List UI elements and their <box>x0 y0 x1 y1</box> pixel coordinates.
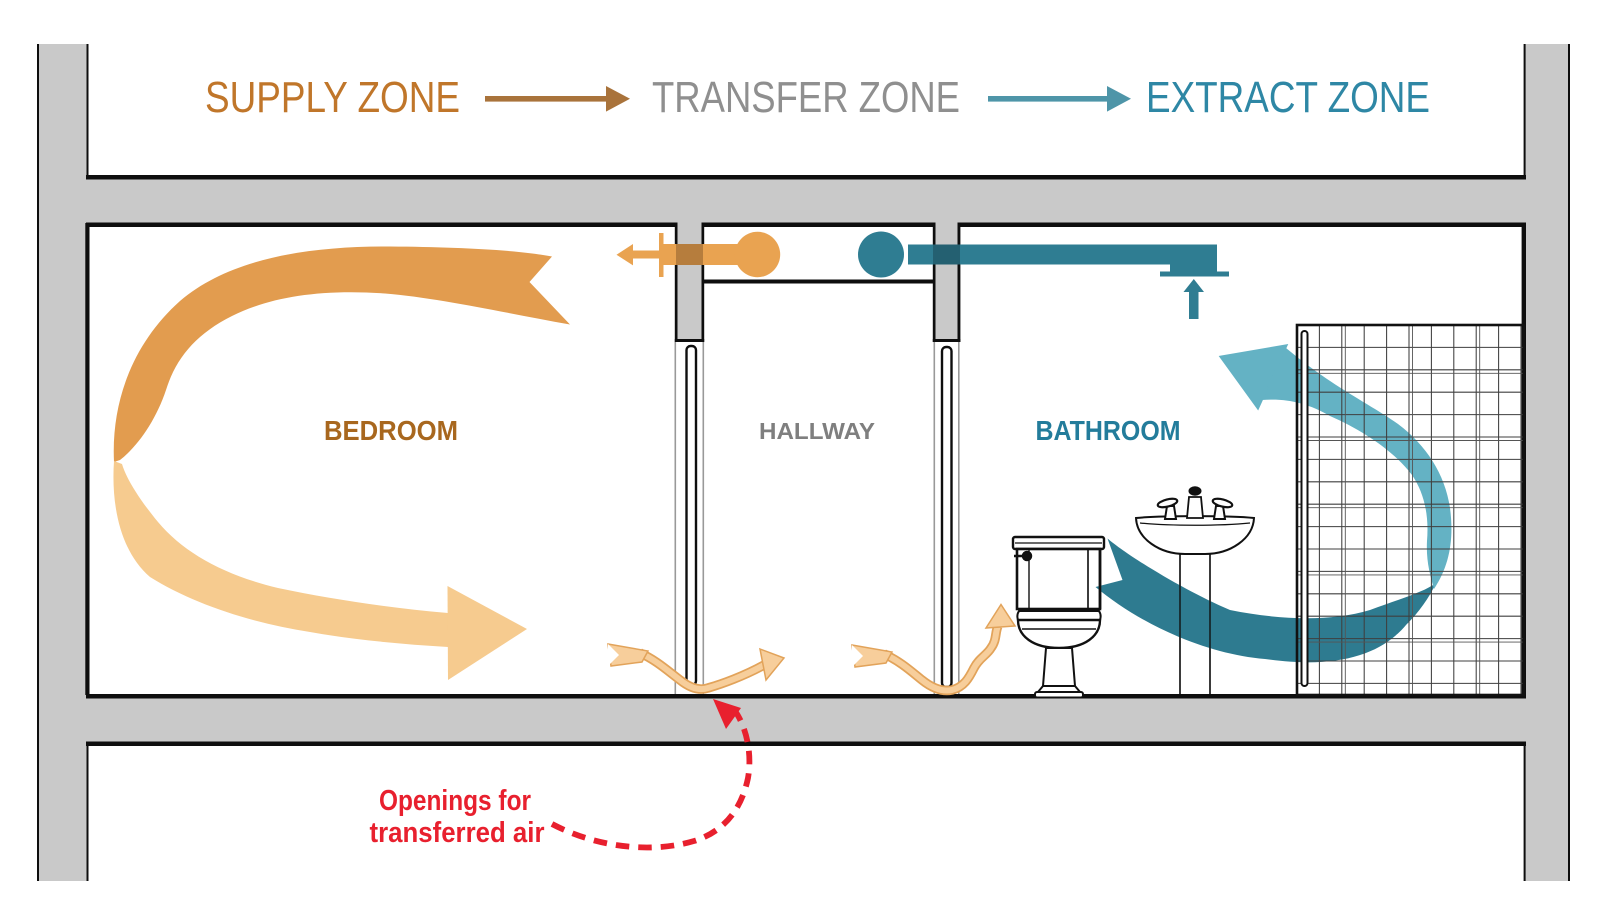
svg-text:Openings for: Openings for <box>379 785 531 817</box>
svg-text:SUPPLY ZONE: SUPPLY ZONE <box>205 73 460 122</box>
svg-text:transferred air: transferred air <box>370 817 545 849</box>
svg-text:BEDROOM: BEDROOM <box>324 415 458 446</box>
svg-text:HALLWAY: HALLWAY <box>759 418 875 444</box>
svg-text:TRANSFER ZONE: TRANSFER ZONE <box>652 73 960 122</box>
svg-text:EXTRACT ZONE: EXTRACT ZONE <box>1146 73 1430 122</box>
svg-text:BATHROOM: BATHROOM <box>1036 415 1181 446</box>
